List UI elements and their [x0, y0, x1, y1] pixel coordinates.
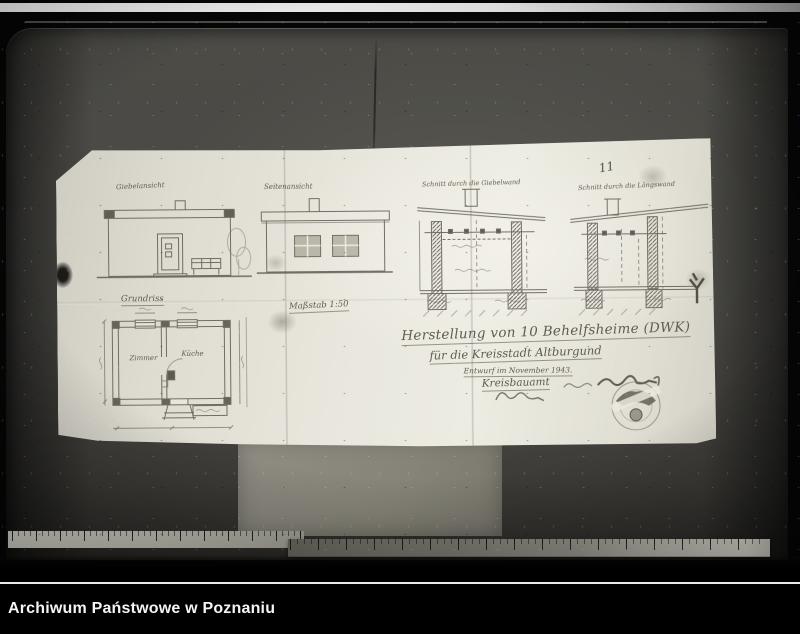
label-elevation-side: Seitenansicht: [264, 184, 312, 191]
caption-bar: Archiwum Państwowe w Poznaniu: [0, 572, 800, 634]
drawing-elevation-front: [96, 200, 252, 277]
photograph: Giebelansicht Seitenansicht Schnitt durc…: [0, 0, 800, 572]
caption-divider-line: [0, 582, 800, 584]
title-line-4: Kreisbauamt: [482, 377, 550, 391]
drawing-elevation-side: [256, 198, 393, 273]
backing-board: [238, 440, 502, 536]
measuring-ruler-left: [8, 531, 304, 548]
label-room-right: Küche: [181, 351, 203, 358]
drawing-section-right: [570, 198, 709, 315]
measuring-ruler-right: [288, 539, 770, 557]
photo-bottom-shadow: [0, 556, 800, 572]
archive-name: Archiwum Państwowe w Poznaniu: [8, 600, 275, 618]
label-room-left: Zimmer: [130, 355, 158, 362]
plate-edge-highlight: [0, 3, 800, 12]
plate-edge-line: [25, 21, 767, 23]
page-number: 11: [598, 160, 615, 175]
title-line-3: Entwurf im November 1943.: [464, 366, 573, 376]
eagle-stamp: [610, 382, 662, 430]
drawing-floor-plan: [99, 307, 247, 430]
label-floor-plan: Grundriss: [121, 295, 164, 306]
blueprint-sheet: Giebelansicht Seitenansicht Schnitt durc…: [56, 138, 717, 452]
drawing-section-left: [417, 189, 547, 317]
archival-scan-viewer: Giebelansicht Seitenansicht Schnitt durc…: [0, 0, 800, 634]
